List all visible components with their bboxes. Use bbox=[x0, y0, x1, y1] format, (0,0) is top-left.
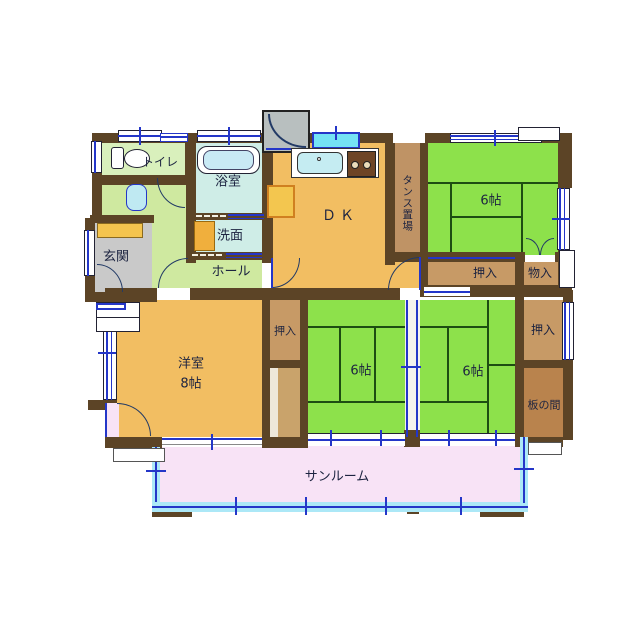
dk-step bbox=[267, 185, 295, 218]
room-label-entrance: 玄関 bbox=[103, 251, 129, 264]
room-label-closet-w: 押入 bbox=[274, 326, 296, 337]
room-label-closet-ne: 押入 bbox=[473, 267, 497, 279]
window-tick bbox=[235, 497, 237, 515]
corridor-floor bbox=[278, 368, 300, 437]
folding-door bbox=[192, 254, 222, 256]
faucet-dot bbox=[317, 157, 321, 161]
sliding-door bbox=[228, 214, 264, 216]
window-tick bbox=[552, 218, 570, 220]
bathtub-inner bbox=[203, 150, 254, 170]
sliding-partition bbox=[416, 300, 418, 437]
window-tick bbox=[330, 430, 332, 446]
wall bbox=[262, 437, 308, 448]
entry-door bbox=[96, 303, 126, 310]
tatami-line bbox=[374, 326, 376, 403]
window-line bbox=[523, 437, 525, 503]
room-label-toilet: トイレ bbox=[142, 156, 178, 168]
wall bbox=[563, 360, 573, 440]
window-tick bbox=[335, 126, 337, 140]
floor-plan: トイレ 浴室 洗面 玄関 ホール ＤＫ タンス置場 6帖 押入 物入 洋室 8帖… bbox=[0, 0, 640, 640]
window-tick bbox=[460, 497, 462, 515]
sliding-partition bbox=[406, 300, 408, 437]
wall bbox=[262, 360, 308, 368]
window-line bbox=[564, 302, 566, 360]
room-label-western-size: 8帖 bbox=[180, 378, 201, 391]
tatami-line bbox=[521, 182, 523, 255]
wall bbox=[558, 133, 572, 188]
room-label-tatami-ne: 6帖 bbox=[480, 195, 501, 208]
outer-step bbox=[528, 442, 562, 455]
window-line bbox=[160, 136, 188, 138]
window-tick bbox=[380, 430, 382, 446]
wall bbox=[262, 296, 270, 440]
sliding-door bbox=[226, 253, 262, 255]
hand-basin bbox=[126, 184, 147, 211]
room-label-closet-e: 押入 bbox=[531, 324, 555, 336]
room-label-washroom: 洗面 bbox=[217, 230, 243, 243]
door-leaf bbox=[419, 257, 421, 290]
room-label-itanoma: 板の間 bbox=[528, 400, 561, 411]
window-tick bbox=[495, 430, 497, 446]
room-label-tatami-s1: 6帖 bbox=[350, 365, 371, 378]
window-line bbox=[94, 141, 96, 173]
window-tick bbox=[305, 497, 307, 515]
sunroom-step bbox=[113, 448, 165, 462]
tatami-line bbox=[450, 182, 452, 255]
room-label-dk: ＤＫ bbox=[322, 209, 358, 223]
window-line bbox=[308, 439, 405, 441]
eave-box bbox=[518, 127, 560, 141]
window-tick bbox=[228, 127, 230, 145]
window-tick bbox=[448, 430, 450, 446]
wall bbox=[90, 215, 154, 223]
partition-tick bbox=[401, 366, 421, 368]
kitchen-sink bbox=[297, 152, 343, 174]
storage-outer-box bbox=[559, 250, 575, 288]
window-tick bbox=[139, 127, 141, 145]
porch-line bbox=[96, 317, 140, 318]
sliding-door bbox=[226, 257, 262, 258]
window-line bbox=[106, 324, 108, 400]
wall bbox=[88, 400, 105, 410]
window-tick bbox=[211, 434, 213, 450]
tatami-line bbox=[447, 326, 449, 403]
corridor-edge bbox=[270, 368, 278, 437]
fusuma-front bbox=[428, 257, 515, 259]
window-line bbox=[420, 439, 515, 441]
wall bbox=[385, 143, 395, 265]
tatami-line bbox=[339, 326, 341, 403]
tatami-line bbox=[308, 401, 405, 403]
window-line bbox=[152, 506, 528, 508]
wall bbox=[420, 143, 428, 257]
room-label-bath: 浴室 bbox=[215, 176, 241, 189]
tatami-line bbox=[308, 326, 405, 328]
window-line bbox=[569, 302, 570, 360]
wall bbox=[515, 252, 524, 292]
room-label-tatami-s2: 6帖 bbox=[462, 366, 483, 379]
tatami-line bbox=[420, 401, 489, 403]
room-label-tansu: タンス置場 bbox=[402, 174, 413, 232]
sliding-door bbox=[424, 291, 470, 293]
shoe-cabinet bbox=[97, 223, 143, 238]
sliding-door bbox=[228, 218, 264, 219]
toilet-fixture bbox=[111, 147, 124, 169]
tatami-line bbox=[428, 182, 558, 184]
door-leaf bbox=[271, 258, 273, 288]
tatami-line bbox=[450, 216, 523, 218]
stove-burner bbox=[351, 161, 359, 169]
washing-machine bbox=[194, 221, 215, 251]
window-tick bbox=[146, 470, 166, 472]
stove-burner bbox=[363, 161, 371, 169]
room-label-hall: ホール bbox=[211, 266, 250, 279]
room-label-western: 洋室 bbox=[178, 358, 204, 371]
tatami-line bbox=[487, 300, 489, 437]
folding-door bbox=[196, 215, 226, 217]
window bbox=[84, 230, 95, 276]
wall bbox=[275, 288, 400, 300]
window-line bbox=[111, 324, 112, 400]
wall bbox=[520, 360, 563, 368]
window-tick bbox=[514, 468, 534, 470]
room-label-sunroom: サンルーム bbox=[305, 471, 370, 484]
room-label-storage-ne: 物入 bbox=[528, 267, 552, 279]
window-line bbox=[87, 230, 89, 276]
window bbox=[91, 141, 102, 173]
window-tick bbox=[385, 497, 387, 515]
window-tick bbox=[494, 130, 496, 146]
tatami-line bbox=[420, 326, 489, 328]
window-tick bbox=[98, 352, 116, 354]
